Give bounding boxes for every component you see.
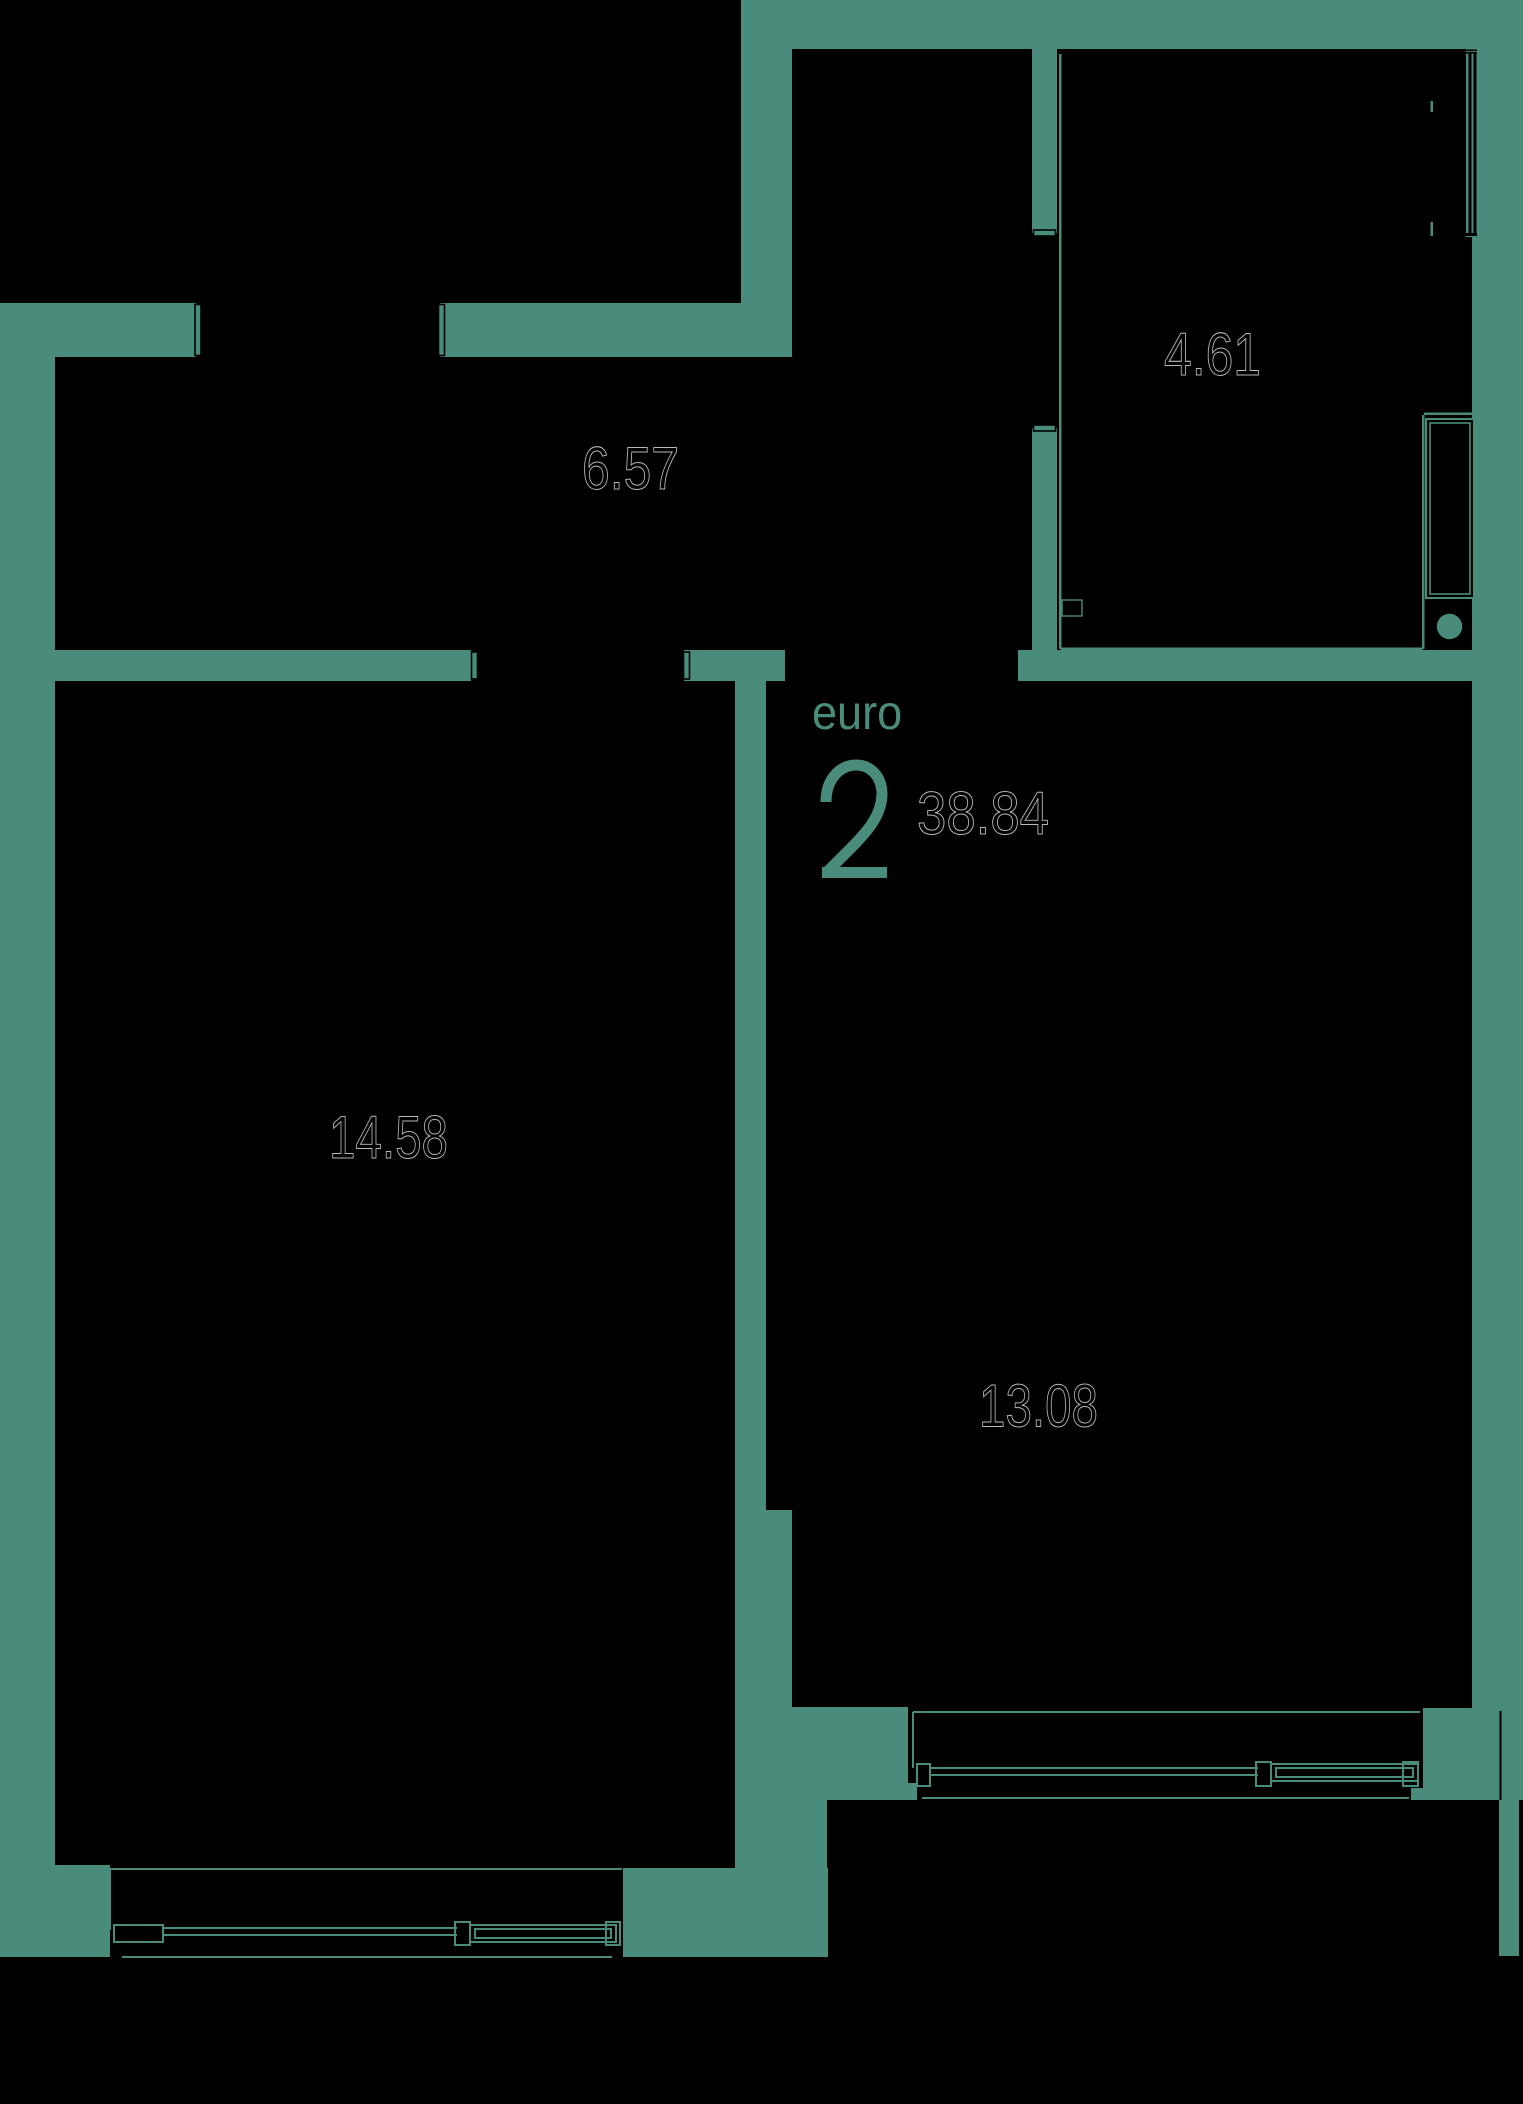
svg-text:38.84: 38.84 [917,780,1049,847]
svg-text:6.57: 6.57 [582,435,679,502]
svg-text:13.08: 13.08 [979,1373,1098,1439]
svg-text:14.58: 14.58 [329,1105,448,1171]
svg-text:euro: euro [812,686,902,740]
svg-text:4.61: 4.61 [1164,321,1261,388]
